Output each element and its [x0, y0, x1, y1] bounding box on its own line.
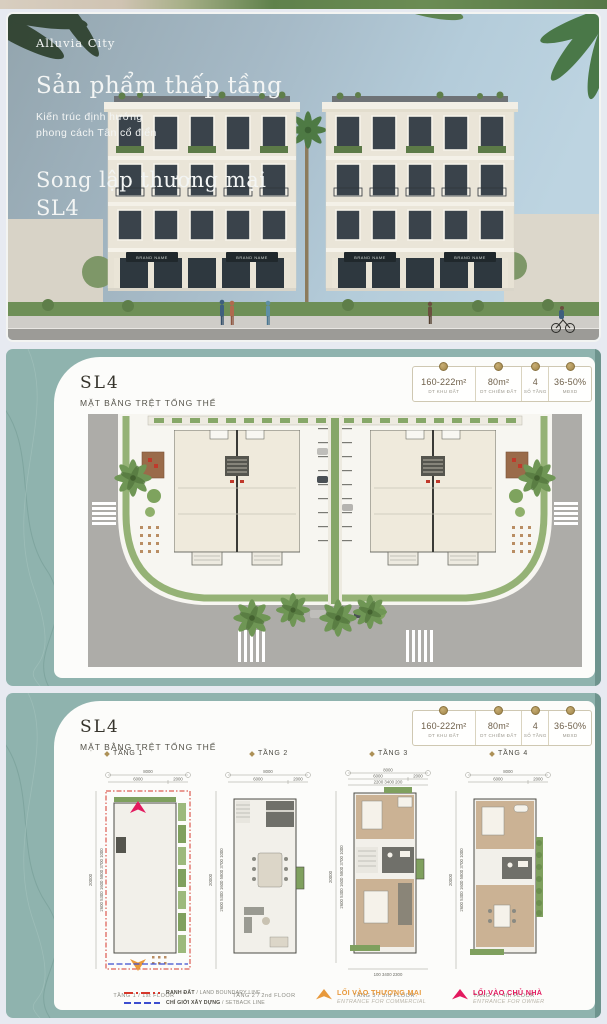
- floors-icon: [531, 362, 540, 371]
- hero-product-line1: Song lập thương mại: [36, 166, 282, 194]
- svg-text:2600 5300 1600 5800 37: 2600 5300 1600 5800 3700 1000: [339, 845, 344, 909]
- floor-2-column: 8000 6000 2000 20000 2600 5300 1600 5800…: [208, 767, 320, 999]
- svg-text:100 3400 2300: 100 3400 2300: [374, 972, 403, 977]
- floor-4-plan: 8000 6000 2000 20000 2600 5300 1600 5800…: [448, 767, 560, 985]
- bathtub: [514, 805, 528, 812]
- floor-1-plan: 8000 6000 2000 20000 2600 5300 1600 5800…: [88, 767, 200, 985]
- land-area-icon: [439, 362, 448, 371]
- balcony: [296, 867, 304, 889]
- stairs: [236, 801, 250, 823]
- right-building: [322, 92, 518, 292]
- tab-label: TẦNG 3: [378, 750, 408, 757]
- balcony: [416, 859, 424, 879]
- stats-summary: 160-222m²DT KHU ĐẤT 80m²DT CHIẾM ĐẤT 4SỐ…: [412, 366, 592, 402]
- teal-decoration: [6, 693, 54, 1018]
- svg-text:2000: 2000: [173, 777, 183, 782]
- stat-footprint: 80m²DT CHIẾM ĐẤT: [475, 367, 522, 401]
- brand-name: Alluvia City: [36, 36, 282, 50]
- legend-label-en: / LAND BOUNDARY LINE: [195, 990, 261, 996]
- stat-value: 160-222m²: [421, 721, 466, 731]
- legend-commercial-entrance: LỐI VÀO THƯƠNG MẠI ENTRANCE FOR COMMERCI…: [316, 988, 426, 1005]
- bed: [364, 891, 388, 923]
- floor-plans-panel: SL4 MẶT BẰNG TRỆT TỔNG THỂ 160-222m²DT K…: [54, 701, 595, 1010]
- legend-label-en: ENTRANCE FOR COMMERCIAL: [337, 999, 426, 1005]
- section-subtitle: MẶT BẰNG TRỆT TỔNG THỂ: [80, 742, 216, 752]
- tab-label: TẦNG 1: [113, 750, 143, 757]
- floor-4-column: 8000 6000 2000 20000 2600 5300 1600 5800…: [448, 767, 560, 999]
- slide-right-edge: [595, 693, 601, 1018]
- svg-text:2200 3400 200: 2200 3400 200: [374, 780, 403, 785]
- hero-tagline-line2: phong cách Tân cổ điển: [36, 125, 282, 141]
- patio-dots: [152, 956, 167, 965]
- svg-text:8000: 8000: [383, 768, 393, 773]
- legend-label-en: ENTRANCE FOR OWNER: [473, 999, 544, 1005]
- stat-density: 36-50%MĐXD: [548, 367, 591, 401]
- svg-text:8000: 8000: [263, 769, 273, 774]
- stat-label: SỐ TẦNG: [524, 389, 547, 394]
- legend-label-vi: LỐI VÀO THƯƠNG MẠI: [337, 988, 426, 997]
- svg-text:20000: 20000: [448, 873, 453, 886]
- bed: [362, 801, 382, 829]
- density-icon: [566, 706, 575, 715]
- tab-floor-3: TẦNG 3: [370, 750, 408, 757]
- planter-bottom: [470, 949, 504, 955]
- svg-text:20000: 20000: [328, 870, 333, 883]
- site-plan-panel: SL4 MẶT BẰNG TRỆT TỔNG THỂ 160-222m²DT K…: [54, 357, 595, 678]
- teal-decoration: [6, 349, 54, 686]
- owner-entrance-arrow-icon: [452, 989, 468, 1002]
- dining-table: [258, 853, 282, 887]
- floor-3-column: 8000 6000 2000 2200 3400 200 20000 2600 …: [328, 767, 440, 999]
- stat-value: 36-50%: [554, 721, 586, 731]
- svg-text:2000: 2000: [293, 777, 303, 782]
- kitchen: [266, 801, 294, 827]
- svg-text:2600 5300 1600 5800 37: 2600 5300 1600 5800 3700 1000: [459, 848, 464, 912]
- floor-3-plan: 8000 6000 2000 2200 3400 200 20000 2600 …: [328, 767, 440, 985]
- bathroom: [502, 857, 532, 879]
- stat-footprint: 80m²DT CHIẾM ĐẤT: [475, 711, 522, 745]
- svg-text:20000: 20000: [208, 873, 213, 886]
- previous-slide-edge: [0, 0, 607, 9]
- section-header: SL4 MẶT BẰNG TRỆT TỔNG THỂ: [80, 717, 216, 752]
- planter-top: [384, 787, 412, 793]
- land-area-icon: [439, 706, 448, 715]
- density-icon: [566, 362, 575, 371]
- svg-text:6000: 6000: [253, 777, 263, 782]
- svg-text:8000: 8000: [503, 769, 513, 774]
- shop-space: [114, 803, 176, 953]
- stat-floors: 4SỐ TẦNG: [521, 711, 548, 745]
- section-subtitle: MẶT BẰNG TRỆT TỔNG THỂ: [80, 398, 216, 408]
- stat-land-area: 160-222m²DT KHU ĐẤT: [413, 711, 475, 745]
- diamond-bullet-icon: [104, 751, 110, 757]
- building-pair-left: [174, 430, 300, 565]
- svg-text:2600 5300 1600 5800 37: 2600 5300 1600 5800 3700 1000: [99, 848, 104, 912]
- legend-land-boundary: RANH ĐẤT / LAND BOUNDARY LINE: [124, 988, 265, 998]
- wardrobe: [398, 883, 412, 925]
- stat-label: SỐ TẦNG: [524, 733, 547, 738]
- stat-density: 36-50%MĐXD: [548, 711, 591, 745]
- hero-slide: BRAND NAME BRAND NAME: [6, 12, 601, 342]
- svg-text:2000: 2000: [533, 777, 543, 782]
- section-code: SL4: [80, 717, 216, 737]
- svg-text:6000: 6000: [133, 777, 143, 782]
- table: [494, 905, 510, 927]
- legend-lines: RANH ĐẤT / LAND BOUNDARY LINE CHỈ GIỚI X…: [124, 988, 265, 1008]
- legend-label-vi: LỐI VÀO CHỦ NHÀ: [473, 988, 544, 997]
- diamond-bullet-icon: [369, 751, 375, 757]
- section-header: SL4 MẶT BẰNG TRỆT TỔNG THỂ: [80, 373, 216, 408]
- stat-value: 160-222m²: [421, 377, 466, 387]
- svg-text:20000: 20000: [88, 873, 93, 886]
- land-boundary-swatch-icon: [124, 992, 160, 994]
- bed: [482, 807, 504, 835]
- svg-text:6000: 6000: [493, 777, 503, 782]
- stat-label: DT CHIẾM ĐẤT: [480, 389, 517, 394]
- site-plan-slide: SL4 MẶT BẰNG TRỆT TỔNG THỂ 160-222m²DT K…: [6, 349, 601, 686]
- stat-label: MĐXD: [563, 733, 578, 738]
- stat-value: 4: [533, 377, 538, 387]
- stat-label: DT KHU ĐẤT: [428, 389, 459, 394]
- svg-text:2000: 2000: [413, 774, 423, 779]
- legend-label-vi: RANH ĐẤT: [166, 990, 195, 996]
- stat-land-area: 160-222m²DT KHU ĐẤT: [413, 367, 475, 401]
- sofa: [244, 907, 264, 915]
- svg-text:2600 5300 1600 5800 37: 2600 5300 1600 5800 3700 1000: [219, 848, 224, 912]
- svg-text:6000: 6000: [373, 774, 383, 779]
- tab-floor-4: TẦNG 4: [490, 750, 528, 757]
- tab-label: TẦNG 2: [258, 750, 288, 757]
- legend-label-vi: CHỈ GIỚI XÂY DỰNG: [166, 1000, 220, 1006]
- bathroom: [382, 847, 414, 873]
- hero-tagline: Kiến trúc định hướng phong cách Tân cổ đ…: [36, 109, 282, 141]
- hero-text-block: Alluvia City Sản phẩm thấp tầng Kiến trú…: [36, 36, 282, 222]
- stats-summary: 160-222m²DT KHU ĐẤT 80m²DT CHIẾM ĐẤT 4SỐ…: [412, 710, 592, 746]
- footprint-icon: [494, 362, 503, 371]
- legend-setback: CHỈ GIỚI XÂY DỰNG / SETBACK LINE: [124, 998, 265, 1008]
- hero-product: Song lập thương mại SL4: [36, 166, 282, 222]
- stat-label: DT CHIẾM ĐẤT: [480, 733, 517, 738]
- section-code: SL4: [80, 373, 216, 393]
- diamond-bullet-icon: [489, 751, 495, 757]
- footprint-icon: [494, 706, 503, 715]
- building-pair-right: [370, 430, 496, 565]
- legend-owner-entrance: LỐI VÀO CHỦ NHÀ ENTRANCE FOR OWNER: [452, 988, 544, 1005]
- svg-text:8000: 8000: [143, 769, 153, 774]
- floor-2-plan: 8000 6000 2000 20000 2600 5300 1600 5800…: [208, 767, 320, 985]
- planter-bottom: [350, 945, 380, 951]
- slide-right-edge: [595, 349, 601, 686]
- hero-title: Sản phẩm thấp tầng: [36, 73, 282, 99]
- stat-value: 80m²: [488, 721, 509, 731]
- street-foreground: [8, 299, 599, 340]
- setback-swatch-icon: [124, 1002, 160, 1004]
- diamond-bullet-icon: [249, 751, 255, 757]
- stat-label: MĐXD: [563, 389, 578, 394]
- coffee-table: [262, 917, 270, 925]
- stair-core: [116, 837, 126, 853]
- floor-1-column: 8000 6000 2000 20000 2600 5300 1600 5800…: [88, 767, 200, 999]
- hero-product-line2: SL4: [36, 194, 282, 222]
- stat-label: DT KHU ĐẤT: [428, 733, 459, 738]
- commercial-entrance-arrow-icon: [316, 989, 332, 1002]
- floors-icon: [531, 706, 540, 715]
- floor-plans-slide: SL4 MẶT BẰNG TRỆT TỔNG THỂ 160-222m²DT K…: [6, 693, 601, 1018]
- tab-floor-2: TẦNG 2: [250, 750, 288, 757]
- hero-tagline-line1: Kiến trúc định hướng: [36, 109, 282, 125]
- stat-value: 36-50%: [554, 377, 586, 387]
- tab-label: TẦNG 4: [498, 750, 528, 757]
- tab-floor-1: TẦNG 1: [105, 750, 143, 757]
- legend-label-en: / SETBACK LINE: [220, 1000, 265, 1006]
- stat-value: 80m²: [488, 377, 509, 387]
- site-plan-illustration: [88, 414, 582, 667]
- stat-value: 4: [533, 721, 538, 731]
- stat-floors: 4SỐ TẦNG: [521, 367, 548, 401]
